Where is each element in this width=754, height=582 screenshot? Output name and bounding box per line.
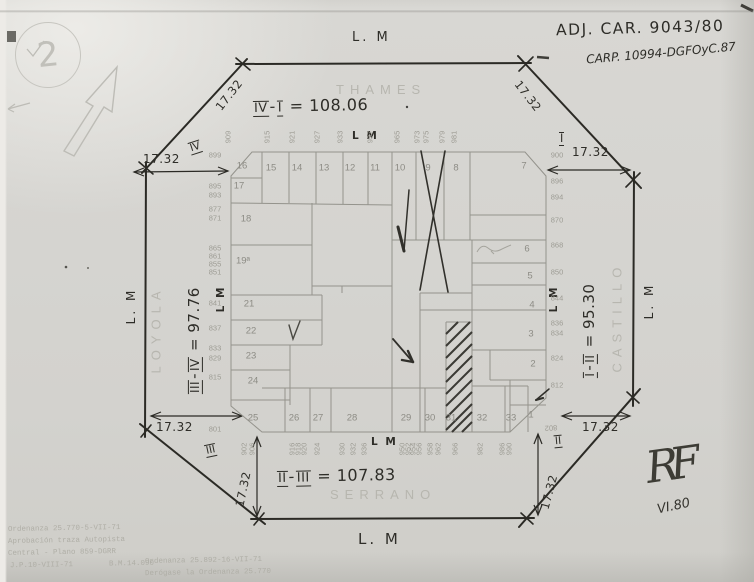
roman-numeral: III [204,443,218,458]
faded-pencil-marks [8,41,511,254]
lot-number: 7 [521,161,526,172]
dim-separator: - [288,467,295,486]
small-arrow [8,103,30,112]
house-number: 893 [209,191,222,200]
corner-marker-top-right: I [558,130,565,146]
dim-value: = 97.76 [185,287,203,351]
corner-marker-bottom-right: II [552,433,563,449]
corner-marker-bottom-left: III [203,441,219,459]
house-number: 877 [209,205,222,214]
lot-number: 13 [319,163,330,174]
ochava-dimension-label: 17.32 [582,420,619,434]
house-number: 924 [313,443,322,456]
dimension-loyola-frontage: III-IV = 97.76 [185,266,203,416]
lot-number: 19ª [236,256,250,267]
lot-number: 17 [234,181,245,192]
house-number: 900 [551,151,564,160]
lot-number: 10 [395,163,406,174]
house-number: 829 [209,354,222,363]
house-number: 833 [209,344,222,353]
house-number: 844 [551,294,564,303]
lot-number: 26 [289,413,300,424]
house-number: 936 [360,443,369,456]
house-number: 850 [551,268,564,277]
signature-monogram: RF [643,441,694,491]
lot-number: 33 [506,413,517,424]
house-number: 933 [336,131,345,144]
dimension-thames-frontage: IV-I = 108.06 [252,95,369,117]
house-number: 982 [476,443,485,456]
roman-numeral: III [296,470,311,486]
lot-number: 16 [237,161,248,172]
lot-number: 6 [524,244,529,255]
street-name-serrano: SERRANO [330,487,436,502]
lot-number: 24 [248,376,259,387]
lot-number: 4 [529,300,534,311]
lot-number: 27 [313,413,324,424]
house-number: 965 [393,131,402,144]
dim-separator: - [269,97,276,116]
street-name-castillo: CASTILLO [610,273,625,373]
ordinance-note-line: Ordenanza 25.892-16-VII-71 [145,555,262,568]
sheet-number: 2 [35,34,61,76]
lot-number: 25 [248,413,259,424]
house-number: 837 [209,324,222,333]
house-number: 979 [438,131,447,144]
house-number: 815 [209,373,222,382]
house-number: 836 [551,319,564,328]
street-name-loyola: LOYOLA [149,280,164,380]
ordinance-note-line: Ordenanza 25.770-5-VII-71 [8,523,121,536]
roman-numeral: I [583,372,598,378]
lot-number: 3 [528,329,533,340]
roman-numeral: II [583,354,598,364]
ordinance-note-line: Aprobación traza Autopista [8,535,125,548]
ochava-dimension-label: 17.32 [156,420,193,434]
dim-value: = 107.83 [317,465,396,485]
lot-number: 23 [246,351,257,362]
lot-number: 31 [446,413,457,424]
lot-number: 11 [370,163,380,174]
lot-number: 15 [266,163,277,174]
house-number: 932 [349,443,358,456]
house-number: 937 [366,131,375,144]
house-number: 802 [545,423,558,433]
house-number: 921 [288,131,297,144]
dim-value: = 95.30 [580,284,598,348]
house-number: 975 [422,131,431,144]
house-number: 896 [551,177,564,186]
house-number: 834 [551,329,564,338]
ochava-dimension-label: 17.32 [572,145,609,159]
lot-number: 28 [347,413,358,424]
house-number: 895 [209,182,222,191]
lot-grid [231,152,546,432]
house-number: 973 [413,131,422,144]
lot-number: 29 [401,413,412,424]
house-number: 927 [313,131,322,144]
house-number: 894 [551,193,564,202]
house-number: 966 [451,443,460,456]
municipal-line-label-right: L. M [642,251,656,351]
house-number: 812 [551,381,564,390]
lot-number: 1 [528,410,533,421]
roman-numeral: I [559,132,564,146]
lot-number: 22 [246,326,257,337]
house-number: 990 [505,443,514,456]
house-number: 899 [209,151,222,160]
house-number: 962 [434,443,443,456]
house-number: 871 [209,214,222,223]
dimension-serrano-frontage: II-III = 107.83 [276,465,396,487]
roman-numeral: IV [188,357,203,372]
house-number: 915 [263,131,272,144]
cadastral-plan-sheet: 2 ADJ. CAR. 9043/80 CARP. 10994-DGFOyC.8… [0,0,754,582]
roman-numeral: IV [253,101,269,117]
roman-numeral: II [554,435,563,449]
municipal-line-label-bottom: L. M [358,530,401,548]
dim-separator: - [185,373,203,379]
lot-number: 2 [530,359,535,370]
ordinance-note-line: Derógase la Ordenanza 25.770 [145,567,271,580]
house-number: 851 [209,268,222,277]
house-number: 801 [209,425,222,434]
municipal-line-label-left: L. M [124,256,138,356]
dimension-castillo-frontage: I-II = 95.30 [580,256,598,406]
house-number: 920 [300,443,309,456]
roman-numeral: I [277,100,284,116]
lot-number: 9 [425,163,430,174]
house-number: 841 [209,299,222,308]
house-number: 930 [338,443,347,456]
house-number: 909 [224,131,233,144]
lot-number: 14 [292,163,303,174]
ordinance-note-line: Central - Plano 859-DGRR [8,547,116,560]
house-number: 868 [551,241,564,250]
roman-numeral: III [188,380,203,394]
dim-separator: - [580,365,598,371]
north-arrow [64,67,117,156]
lot-number: 18 [241,214,252,225]
lot6-scribble [477,245,511,254]
roman-numeral: II [277,471,288,487]
surveyor-marks [289,151,549,400]
house-number: 870 [551,216,564,225]
house-number: 906 [248,443,257,456]
ochava-dimension-label: 17.32 [143,152,180,166]
house-number: 956 [415,443,424,456]
lot-number: 12 [345,163,356,174]
house-number: 981 [450,131,459,144]
lot-number: 30 [425,413,436,424]
lot-number: 5 [527,271,532,282]
dim-value: = 108.06 [290,95,369,115]
lot-number: 32 [477,413,488,424]
lot-number: 8 [453,163,458,174]
house-number: 824 [551,354,564,363]
lot-number: 21 [244,299,255,310]
municipal-line-label-top: L. M [352,30,391,45]
building-line-label-bottom: L M [371,436,398,448]
